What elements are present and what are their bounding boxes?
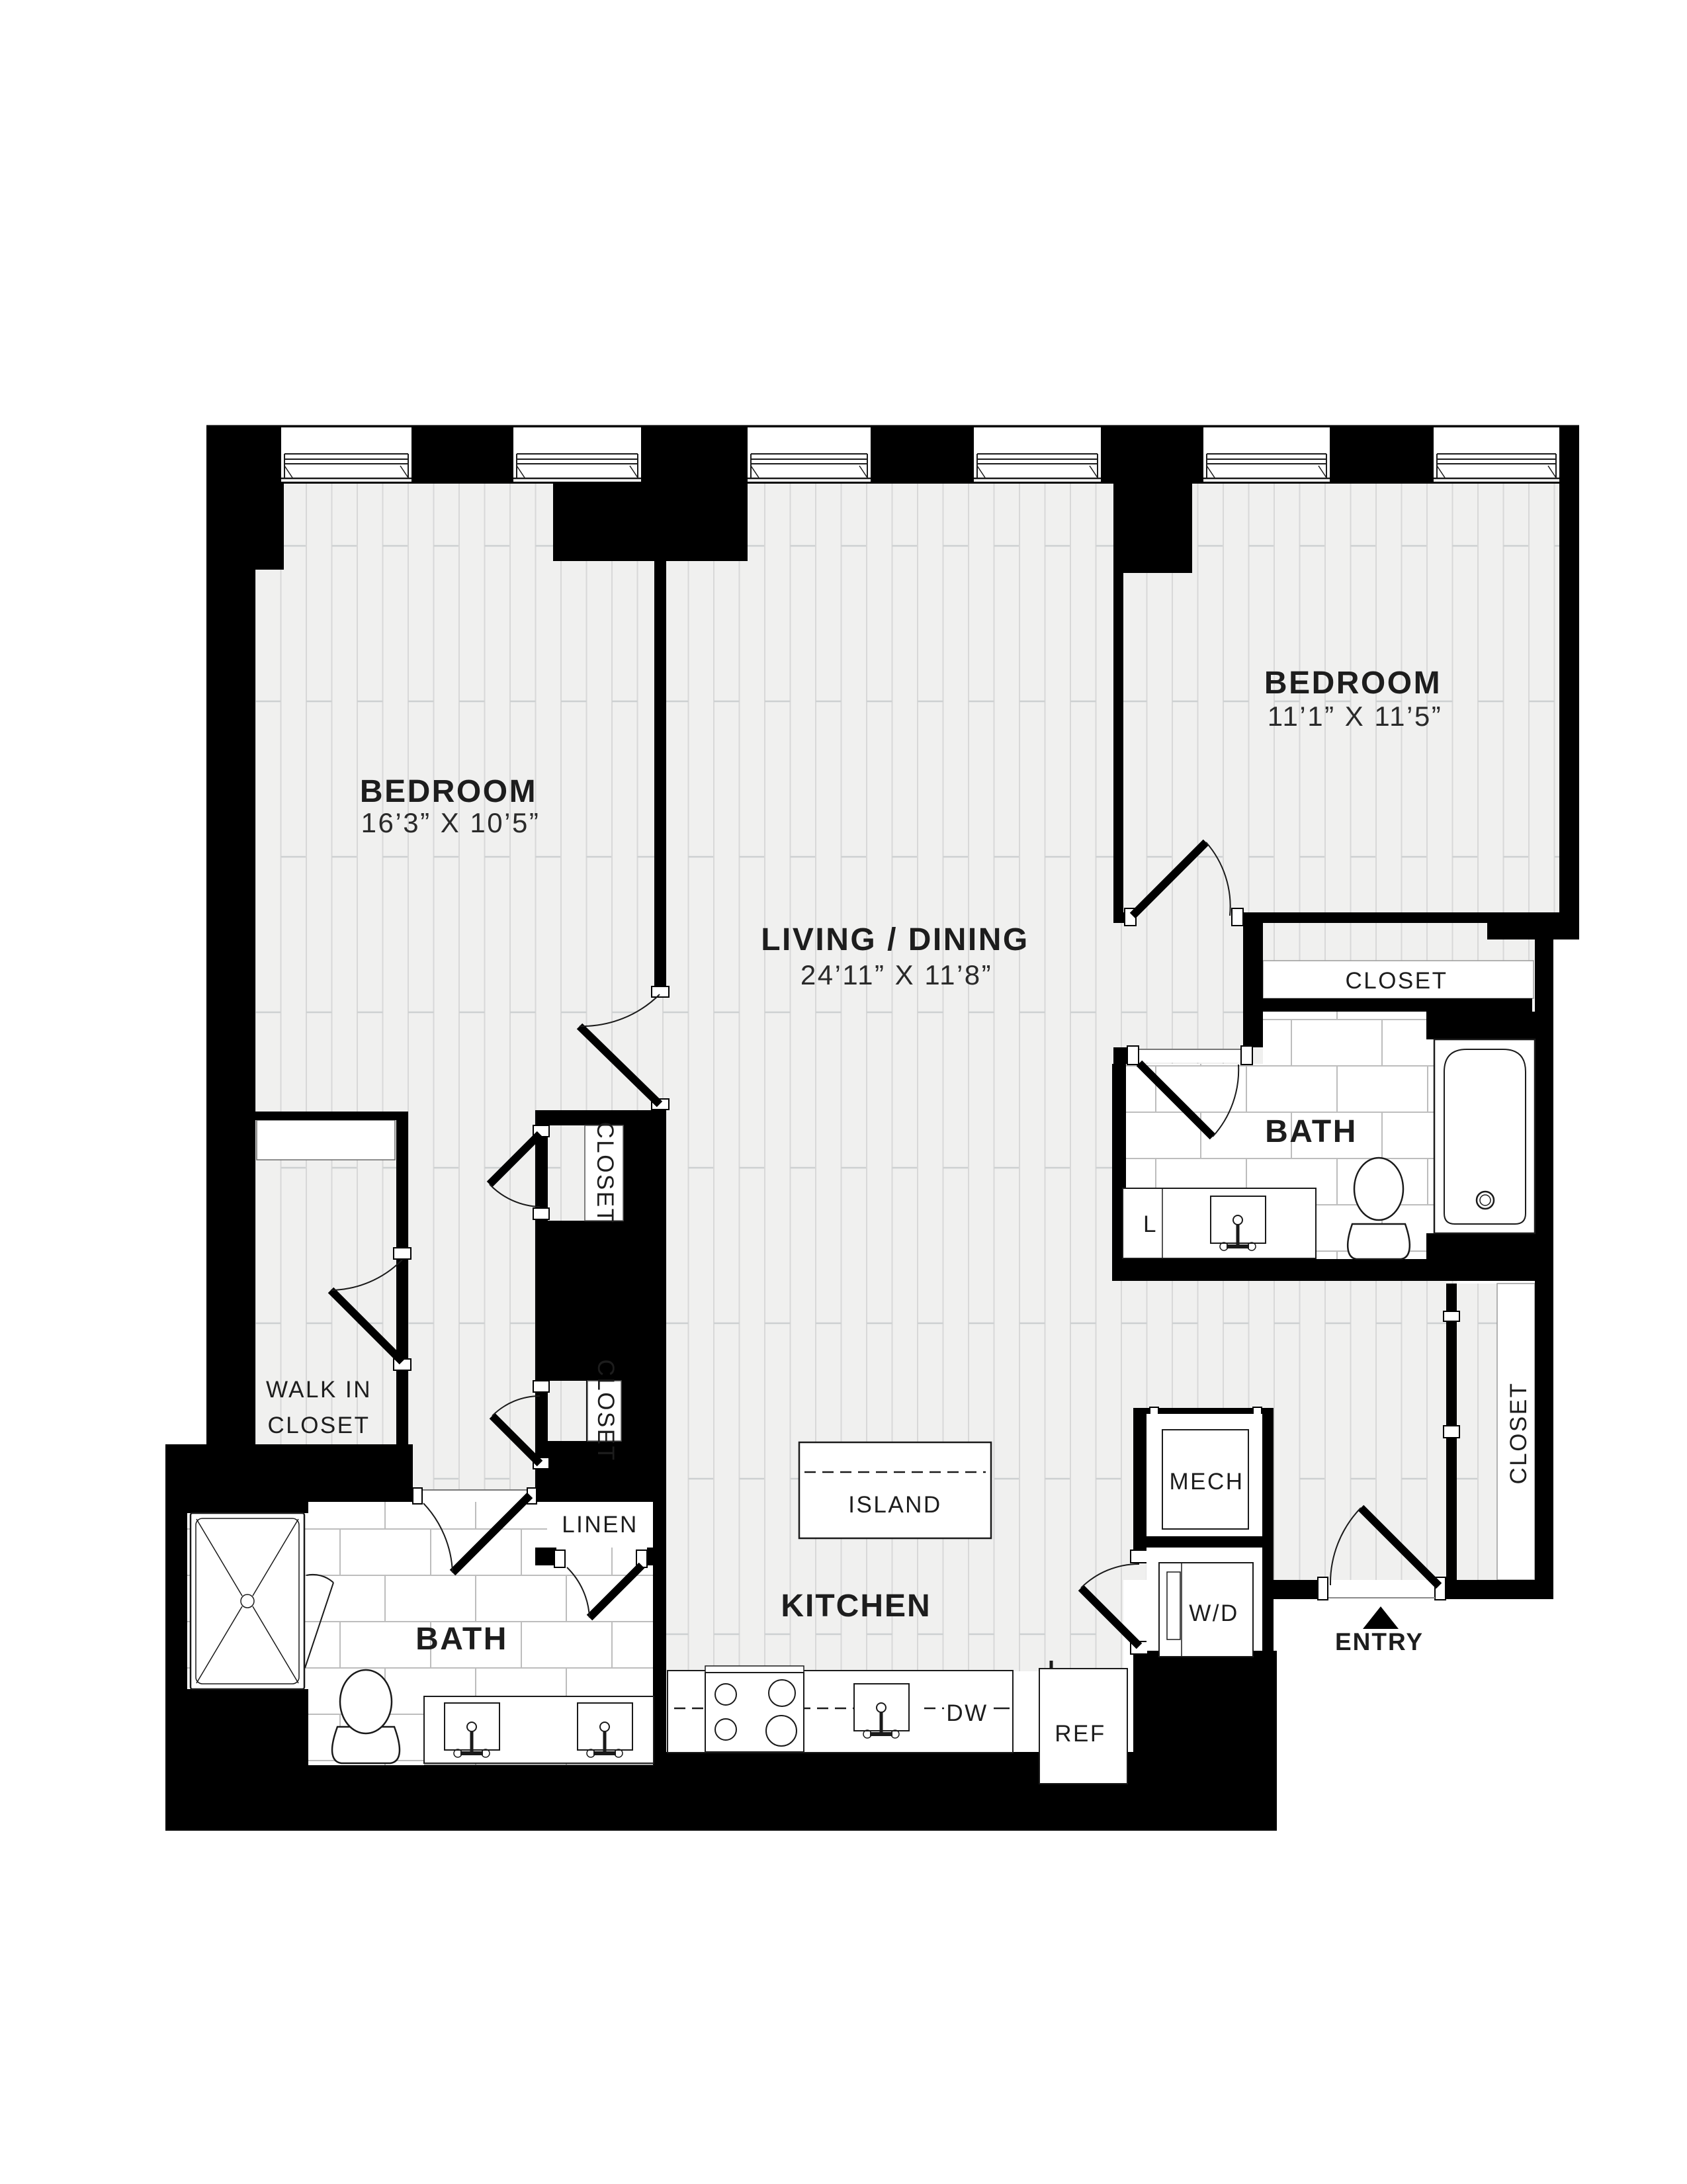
svg-text:CLOSET: CLOSET (1345, 968, 1448, 994)
svg-text:11’1” X 11’5”: 11’1” X 11’5” (1268, 701, 1442, 732)
svg-text:BEDROOM: BEDROOM (1264, 666, 1442, 701)
svg-text:LIVING / DINING: LIVING / DINING (761, 922, 1029, 957)
svg-text:BEDROOM: BEDROOM (360, 774, 537, 809)
svg-text:CLOSET: CLOSET (592, 1121, 618, 1224)
svg-text:CLOSET: CLOSET (1506, 1381, 1532, 1484)
svg-text:W/D: W/D (1189, 1600, 1239, 1626)
svg-text:L: L (1143, 1211, 1158, 1237)
svg-text:CLOSET: CLOSET (593, 1359, 619, 1462)
svg-text:DW: DW (946, 1700, 988, 1726)
svg-text:LINEN: LINEN (562, 1512, 638, 1538)
svg-text:WALK IN: WALK IN (266, 1377, 372, 1403)
svg-text:KITCHEN: KITCHEN (781, 1589, 931, 1624)
svg-text:CLOSET: CLOSET (267, 1413, 370, 1438)
svg-text:BATH: BATH (415, 1622, 508, 1657)
svg-text:16’3” X 10’5”: 16’3” X 10’5” (361, 807, 541, 838)
svg-text:REF: REF (1055, 1721, 1106, 1747)
svg-text:ISLAND: ISLAND (848, 1492, 941, 1518)
svg-text:MECH: MECH (1169, 1469, 1244, 1495)
svg-text:24’11” X 11’8”: 24’11” X 11’8” (800, 959, 992, 990)
svg-text:ENTRY: ENTRY (1335, 1628, 1424, 1655)
svg-text:BATH: BATH (1265, 1114, 1358, 1149)
